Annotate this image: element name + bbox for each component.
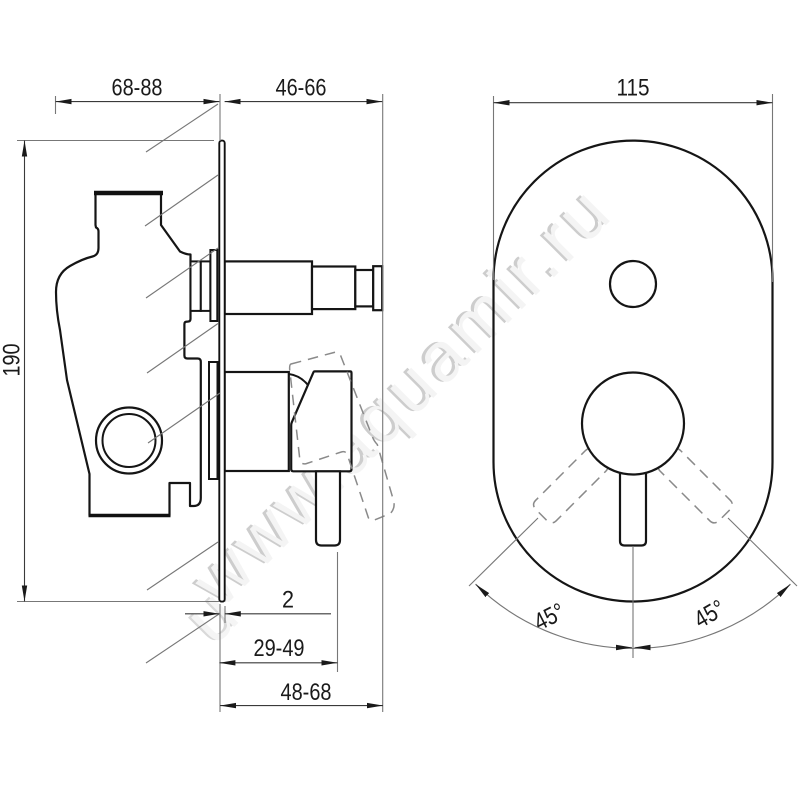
svg-text:46-66: 46-66 [276, 75, 327, 102]
svg-text:115: 115 [617, 74, 650, 101]
svg-text:45°: 45° [530, 598, 570, 636]
svg-text:45°: 45° [690, 595, 730, 634]
svg-text:2: 2 [282, 587, 294, 614]
svg-text:29-49: 29-49 [254, 635, 305, 662]
svg-text:68-88: 68-88 [112, 75, 163, 102]
svg-text:48-68: 48-68 [281, 679, 332, 706]
svg-text:190: 190 [0, 344, 26, 377]
